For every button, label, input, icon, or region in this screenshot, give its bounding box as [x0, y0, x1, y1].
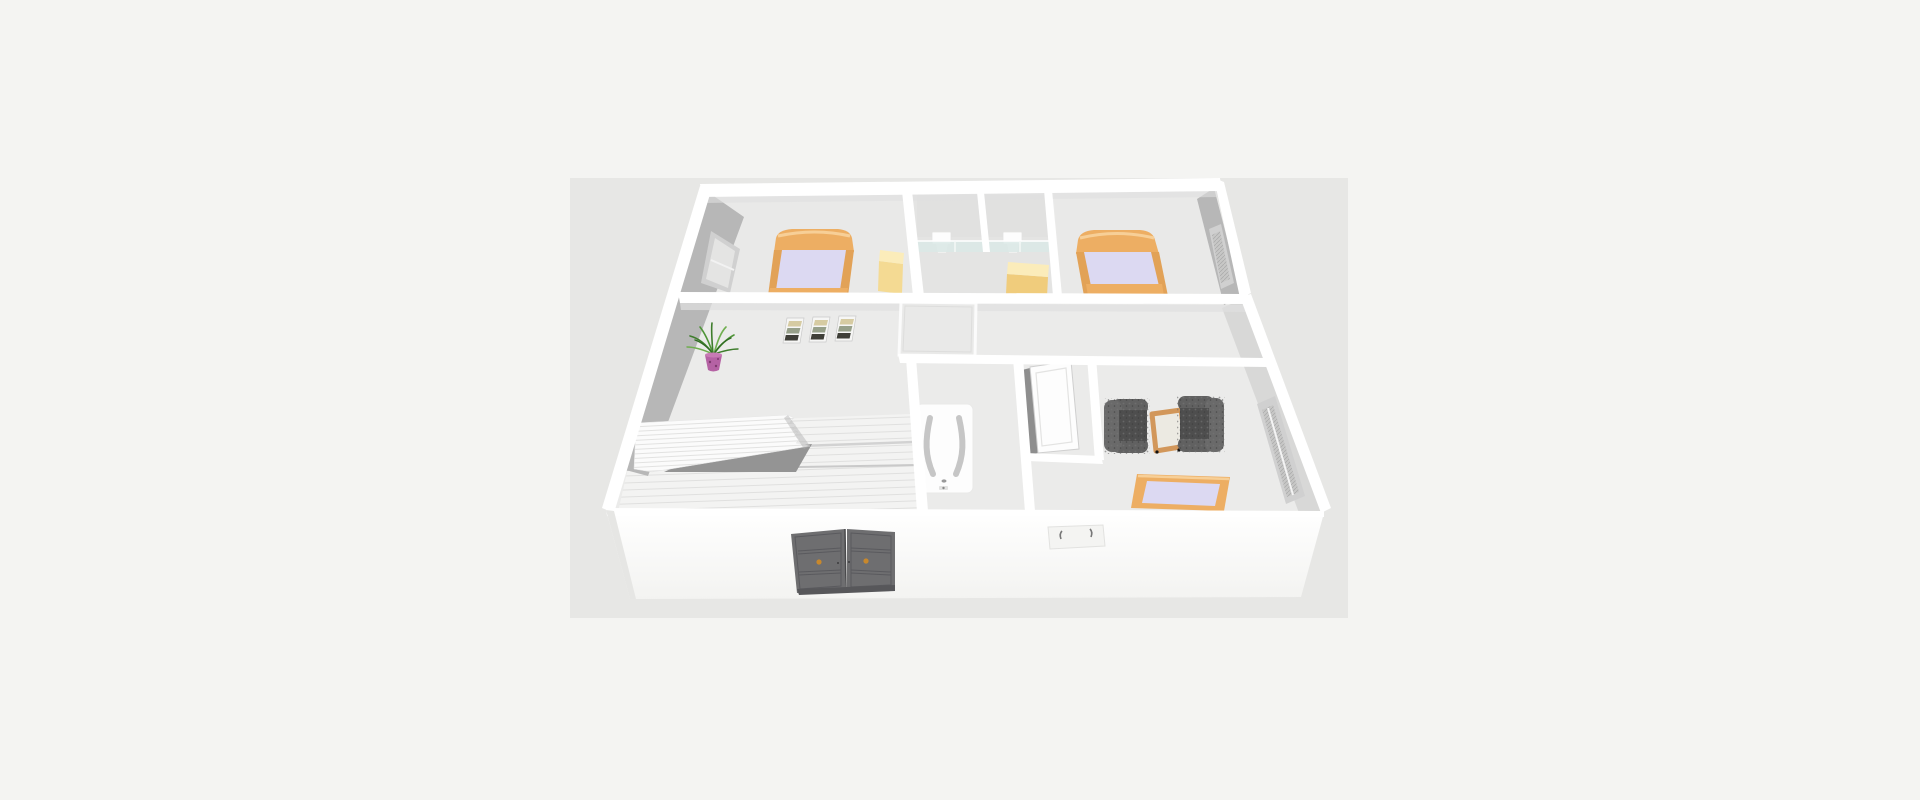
wall-basin[interactable]	[1048, 525, 1105, 549]
picture-frame-2[interactable]	[809, 317, 830, 342]
bed-top-left[interactable]	[768, 229, 854, 298]
picture-frame-3[interactable]	[835, 316, 856, 341]
picture-frame-1[interactable]	[783, 318, 804, 343]
shower-tray[interactable]	[899, 302, 976, 356]
door-right[interactable]	[847, 529, 895, 590]
door-left[interactable]	[791, 529, 845, 593]
mid-wall	[678, 292, 1251, 304]
floor-plan-3d-view[interactable]	[0, 0, 1920, 800]
double-doors[interactable]	[791, 529, 895, 595]
dresser-left[interactable]	[878, 250, 904, 294]
page	[0, 0, 1920, 800]
dresser-right[interactable]	[1006, 262, 1049, 297]
armchair-right[interactable]	[1177, 395, 1225, 453]
staircase[interactable]	[634, 415, 812, 472]
armchair-left[interactable]	[1104, 398, 1150, 454]
bed-bottom-right[interactable]	[1131, 474, 1230, 511]
south-wall	[606, 508, 1324, 599]
picture-frames[interactable]	[783, 316, 856, 343]
wc-open-door[interactable]	[1022, 361, 1079, 455]
bed-top-right[interactable]	[1076, 230, 1168, 296]
